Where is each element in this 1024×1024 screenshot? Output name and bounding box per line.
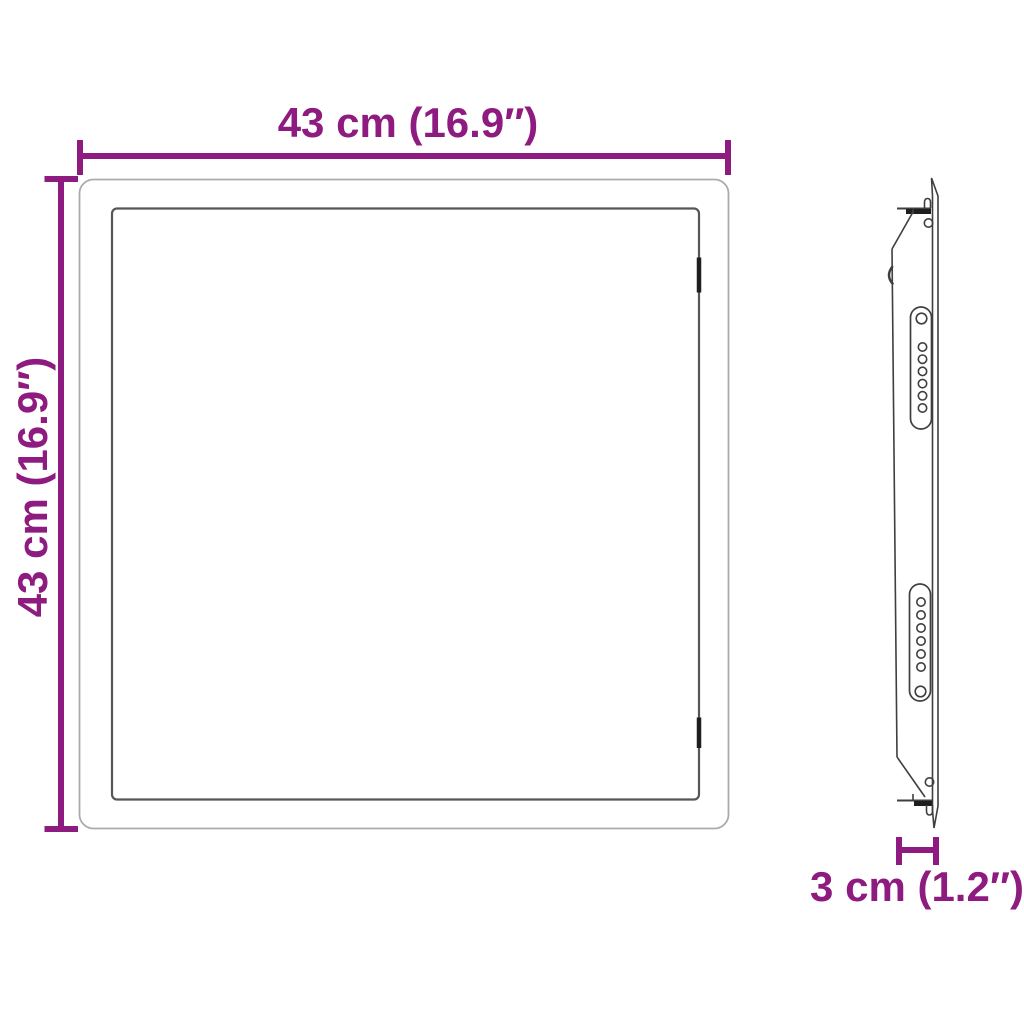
width-dimension-label: 43 cm (16.9″) — [278, 102, 539, 144]
top-pivot-hole — [924, 219, 932, 227]
panel-edge — [932, 178, 939, 828]
top-diagonal-edge — [892, 212, 913, 249]
rail-slot — [910, 584, 931, 701]
side-view — [889, 178, 938, 828]
front-view — [80, 180, 729, 829]
diagram-canvas: 43 cm (16.9″) 43 cm (16.9″) 3 cm (1.2″) — [0, 0, 1024, 1024]
outer-frame — [80, 180, 729, 829]
bottom-diagonal-edge — [897, 757, 925, 797]
depth-dimension-label: 3 cm (1.2″) — [810, 866, 1024, 908]
top-mounting-tab — [925, 199, 931, 209]
bracket-back-edge — [892, 249, 897, 757]
height-dimension-label: 43 cm (16.9″) — [12, 357, 54, 618]
mounting-rail-top — [911, 307, 932, 429]
depth-dimension — [899, 837, 936, 865]
inner-frame — [112, 209, 699, 800]
bottom-mounting-tab — [927, 805, 933, 815]
mounting-rail-bottom — [910, 584, 931, 701]
